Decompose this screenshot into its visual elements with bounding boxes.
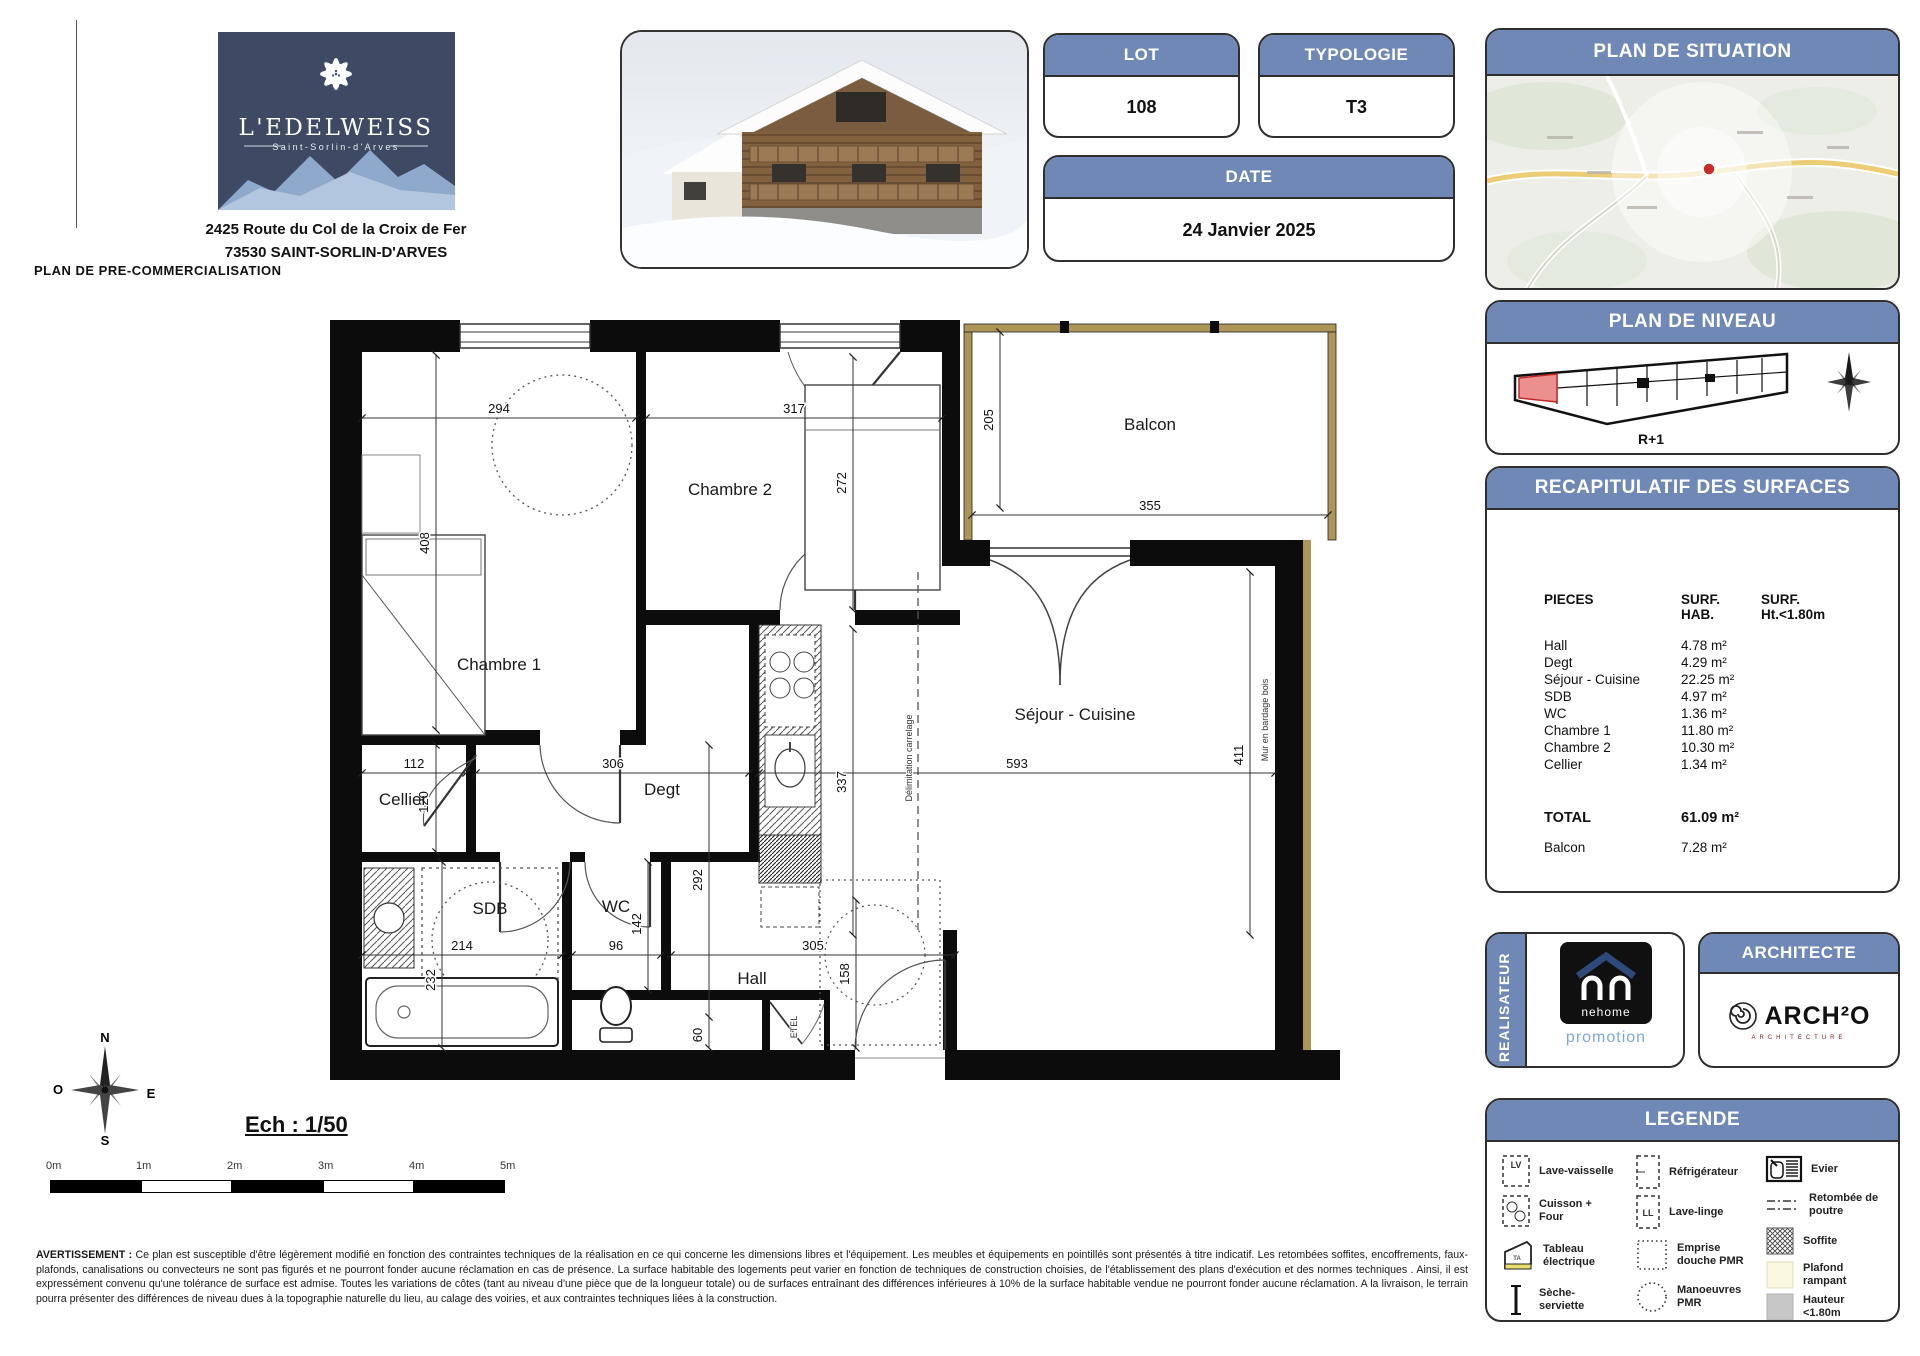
compass-o: O [53,1082,63,1097]
legend-seche-serviette: Sèche-serviette [1501,1282,1617,1318]
table-row: Chambre 210.30 m² [1544,740,1884,755]
toilet [601,987,631,1025]
hauteur-icon [1765,1292,1795,1322]
svg-text:306: 306 [602,756,624,771]
bed-chambre2 [805,385,940,590]
svg-text:96: 96 [609,938,623,953]
realisateur-panel: REALISATEUR nehome promotion [1485,932,1685,1068]
table-row: Cellier1.34 m² [1544,757,1884,772]
address-line2: 73530 SAINT-SORLIN-D'ARVES [150,241,522,264]
lot-box: LOT 108 [1043,33,1240,138]
svg-text:LV: LV [1511,1160,1522,1170]
edelweiss-logo-icon: L'EDELWEISS Saint-Sorlin-d'Arves [218,32,455,210]
scale-bar-labels: 0m 1m 2m 3m 4m 5m [50,1160,506,1174]
surfaces-total-row: TOTAL61.09 m² [1544,810,1884,826]
legend-retombee: Retombée de poutre [1765,1192,1887,1217]
table-row: Chambre 111.80 m² [1544,723,1884,738]
legend-emprise-douche: Emprise douche PMR [1635,1238,1755,1272]
svg-text:337: 337 [834,771,849,793]
nehome-logo-icon: nehome [1560,942,1652,1024]
room-chambre2: Chambre 2 [688,480,772,499]
svg-text:355: 355 [1139,498,1161,513]
legende-panel: LEGENDE LV Lave-vaisselle Cuisson + Four… [1485,1098,1900,1322]
typologie-box: TYPOLOGIE T3 [1258,33,1455,138]
room-hall: Hall [737,969,766,988]
legend-refrigerateur: Réfrigérateur [1635,1154,1747,1190]
mini-compass-icon [1827,352,1871,412]
date-value: 24 Janvier 2025 [1045,199,1453,262]
svg-text:60: 60 [690,1028,705,1042]
map-marker-icon [1703,163,1715,175]
svg-text:TA: TA [1513,1256,1521,1262]
room-sejour: Séjour - Cuisine [1015,705,1136,724]
situation-map [1487,76,1898,290]
archo-sub: ARCHITECTURE [1751,1035,1846,1041]
niveau-title: PLAN DE NIVEAU [1487,302,1898,344]
refrigerateur-box [761,887,819,927]
surfaces-panel: RECAPITULATIF DES SURFACES PIECES SURF.H… [1485,466,1900,893]
niveau-panel: PLAN DE NIVEAU R+1 [1485,300,1900,455]
architecte-panel: ARCHITECTE ARCH²O ARCHITECTURE [1698,932,1900,1068]
svg-text:205: 205 [981,409,996,431]
architecte-title: ARCHITECTE [1700,934,1898,974]
warning-paragraph: AVERTISSEMENT : Ce plan est susceptible … [36,1248,1468,1306]
table-row: SDB4.97 m² [1544,689,1884,704]
carrelage-note: Délimitation carrelage [904,714,914,801]
refrigerateur-icon [1635,1154,1661,1190]
legend-soffite: Soffite [1765,1226,1881,1256]
situation-panel: PLAN DE SITUATION [1485,28,1900,290]
surfaces-table: PIECES SURF.HAB. SURF.Ht.<1.80m Hall4.78… [1487,510,1898,893]
legend-tableau: TA Tableau électrique [1501,1238,1621,1274]
svg-text:408: 408 [417,532,432,554]
plafond-rampant-icon [1765,1260,1795,1290]
warning-text: Ce plan est susceptible d'être légèremen… [36,1249,1468,1305]
lave-vaisselle-icon: LV [1501,1154,1531,1188]
floorplan-document: { "page": { "doc_label": "PLAN DE PRE-CO… [0,0,1920,1356]
scale-bar [50,1180,505,1193]
retombee-poutre-icon [1765,1195,1801,1215]
svg-text:272: 272 [834,472,849,494]
typologie-value: T3 [1260,77,1453,138]
compass-e: E [147,1086,156,1101]
realisateur-logo: nehome promotion [1527,934,1685,1066]
svg-text:214: 214 [451,938,473,953]
archo-spiral-icon [1728,1001,1758,1031]
doc-label-rule [76,20,77,228]
typologie-label: TYPOLOGIE [1260,35,1453,77]
room-chambre1: Chambre 1 [457,655,541,674]
svg-text:142: 142 [629,913,644,935]
lot-value: 108 [1045,77,1238,138]
highlighted-unit [1519,374,1557,402]
date-box: DATE 24 Janvier 2025 [1043,155,1455,262]
project-address: 2425 Route du Col de la Croix de Fer 735… [150,218,522,265]
lave-linge-icon: LL [1635,1194,1661,1230]
legende-title: LEGENDE [1487,1100,1898,1142]
legende-body: LV Lave-vaisselle Cuisson + Four TA Tabl… [1487,1142,1898,1322]
compass-rose: N S O E [50,1032,160,1147]
svg-text:112: 112 [404,756,425,771]
project-name: L'EDELWEISS [238,115,433,141]
address-line1: 2425 Route du Col de la Croix de Fer [150,218,522,241]
svg-text:593: 593 [1006,756,1028,771]
evier-icon [1765,1154,1803,1184]
room-wc: WC [602,897,630,916]
realisateur-band: REALISATEUR [1487,934,1527,1066]
chalet-photo-illustration [622,32,1027,267]
table-row: Degt4.29 m² [1544,655,1884,670]
compass-s: S [101,1133,110,1147]
surfaces-header-row: PIECES SURF.HAB. SURF.Ht.<1.80m [1544,592,1884,622]
svg-text:411: 411 [1231,745,1246,766]
bathtub [366,978,558,1046]
svg-text:158: 158 [837,963,852,985]
windows [460,324,1130,556]
legend-lave-linge: LL Lave-linge [1635,1194,1747,1230]
emprise-douche-icon [1635,1238,1669,1272]
table-row: Séjour - Cuisine22.25 m² [1544,672,1884,687]
room-balcon: Balcon [1124,415,1176,434]
nehome-wordmark: nehome [1581,1005,1630,1019]
legend-lave-vaisselle: LV Lave-vaisselle [1501,1154,1617,1188]
date-label: DATE [1045,157,1453,199]
svg-text:232: 232 [423,969,438,991]
seche-serviette-icon [1501,1282,1531,1318]
legend-cuisson: Cuisson + Four [1501,1194,1617,1228]
archo-wordmark: ARCH²O [1765,1002,1871,1031]
svg-text:LL: LL [1643,1208,1654,1218]
tableau-electrique-icon: TA [1501,1238,1535,1274]
bed-chambre1 [362,535,485,735]
svg-text:305: 305 [802,938,824,953]
pmr-circle-chambre1 [492,375,632,515]
legend-plafond-rampant: Plafond rampant [1765,1260,1881,1290]
svg-text:292: 292 [690,869,705,891]
doc-type-label: PLAN DE PRE-COMMERCIALISATION [34,262,282,280]
room-cellier: Cellier [379,790,428,809]
floor-plan: 294 317 205 355 272 337 408 112 306 593 … [300,290,1360,1110]
promotion-label: promotion [1527,1029,1685,1047]
manoeuvres-pmr-icon [1635,1280,1669,1314]
surfaces-title: RECAPITULATIF DES SURFACES [1487,468,1898,510]
compass-n: N [100,1032,109,1045]
surfaces-balcon-row: Balcon7.28 m² [1544,840,1884,855]
bardage-note: Mur en bardage bois [1260,678,1270,761]
situation-title: PLAN DE SITUATION [1487,30,1898,76]
etel-label: ETEL [789,1016,799,1039]
project-logo: L'EDELWEISS Saint-Sorlin-d'Arves [218,32,455,210]
room-sdb: SDB [473,899,508,918]
table-row: Hall4.78 m² [1544,638,1884,653]
warning-label: AVERTISSEMENT : [36,1249,132,1261]
lot-label: LOT [1045,35,1238,77]
niveau-level: R+1 [1638,431,1664,447]
room-degt: Degt [644,780,680,799]
architecte-logo: ARCH²O ARCHITECTURE [1700,974,1898,1068]
scale-label: Ech : 1/50 [245,1112,348,1138]
legend-evier: Evier [1765,1154,1889,1184]
legend-hauteur: Hauteur <1.80m [1765,1292,1881,1322]
realisateur-title: REALISATEUR [1496,952,1512,1062]
niveau-miniplan: R+1 [1487,344,1898,454]
legend-manoeuvres-pmr: Manoeuvres PMR [1635,1280,1755,1314]
project-place: Saint-Sorlin-d'Arves [272,142,399,152]
table-row: WC1.36 m² [1544,706,1884,721]
svg-text:317: 317 [783,401,805,416]
cuisson-four-icon [1501,1194,1531,1228]
svg-text:294: 294 [488,401,510,416]
building-photo [620,30,1029,269]
soffite-icon [1765,1226,1795,1256]
